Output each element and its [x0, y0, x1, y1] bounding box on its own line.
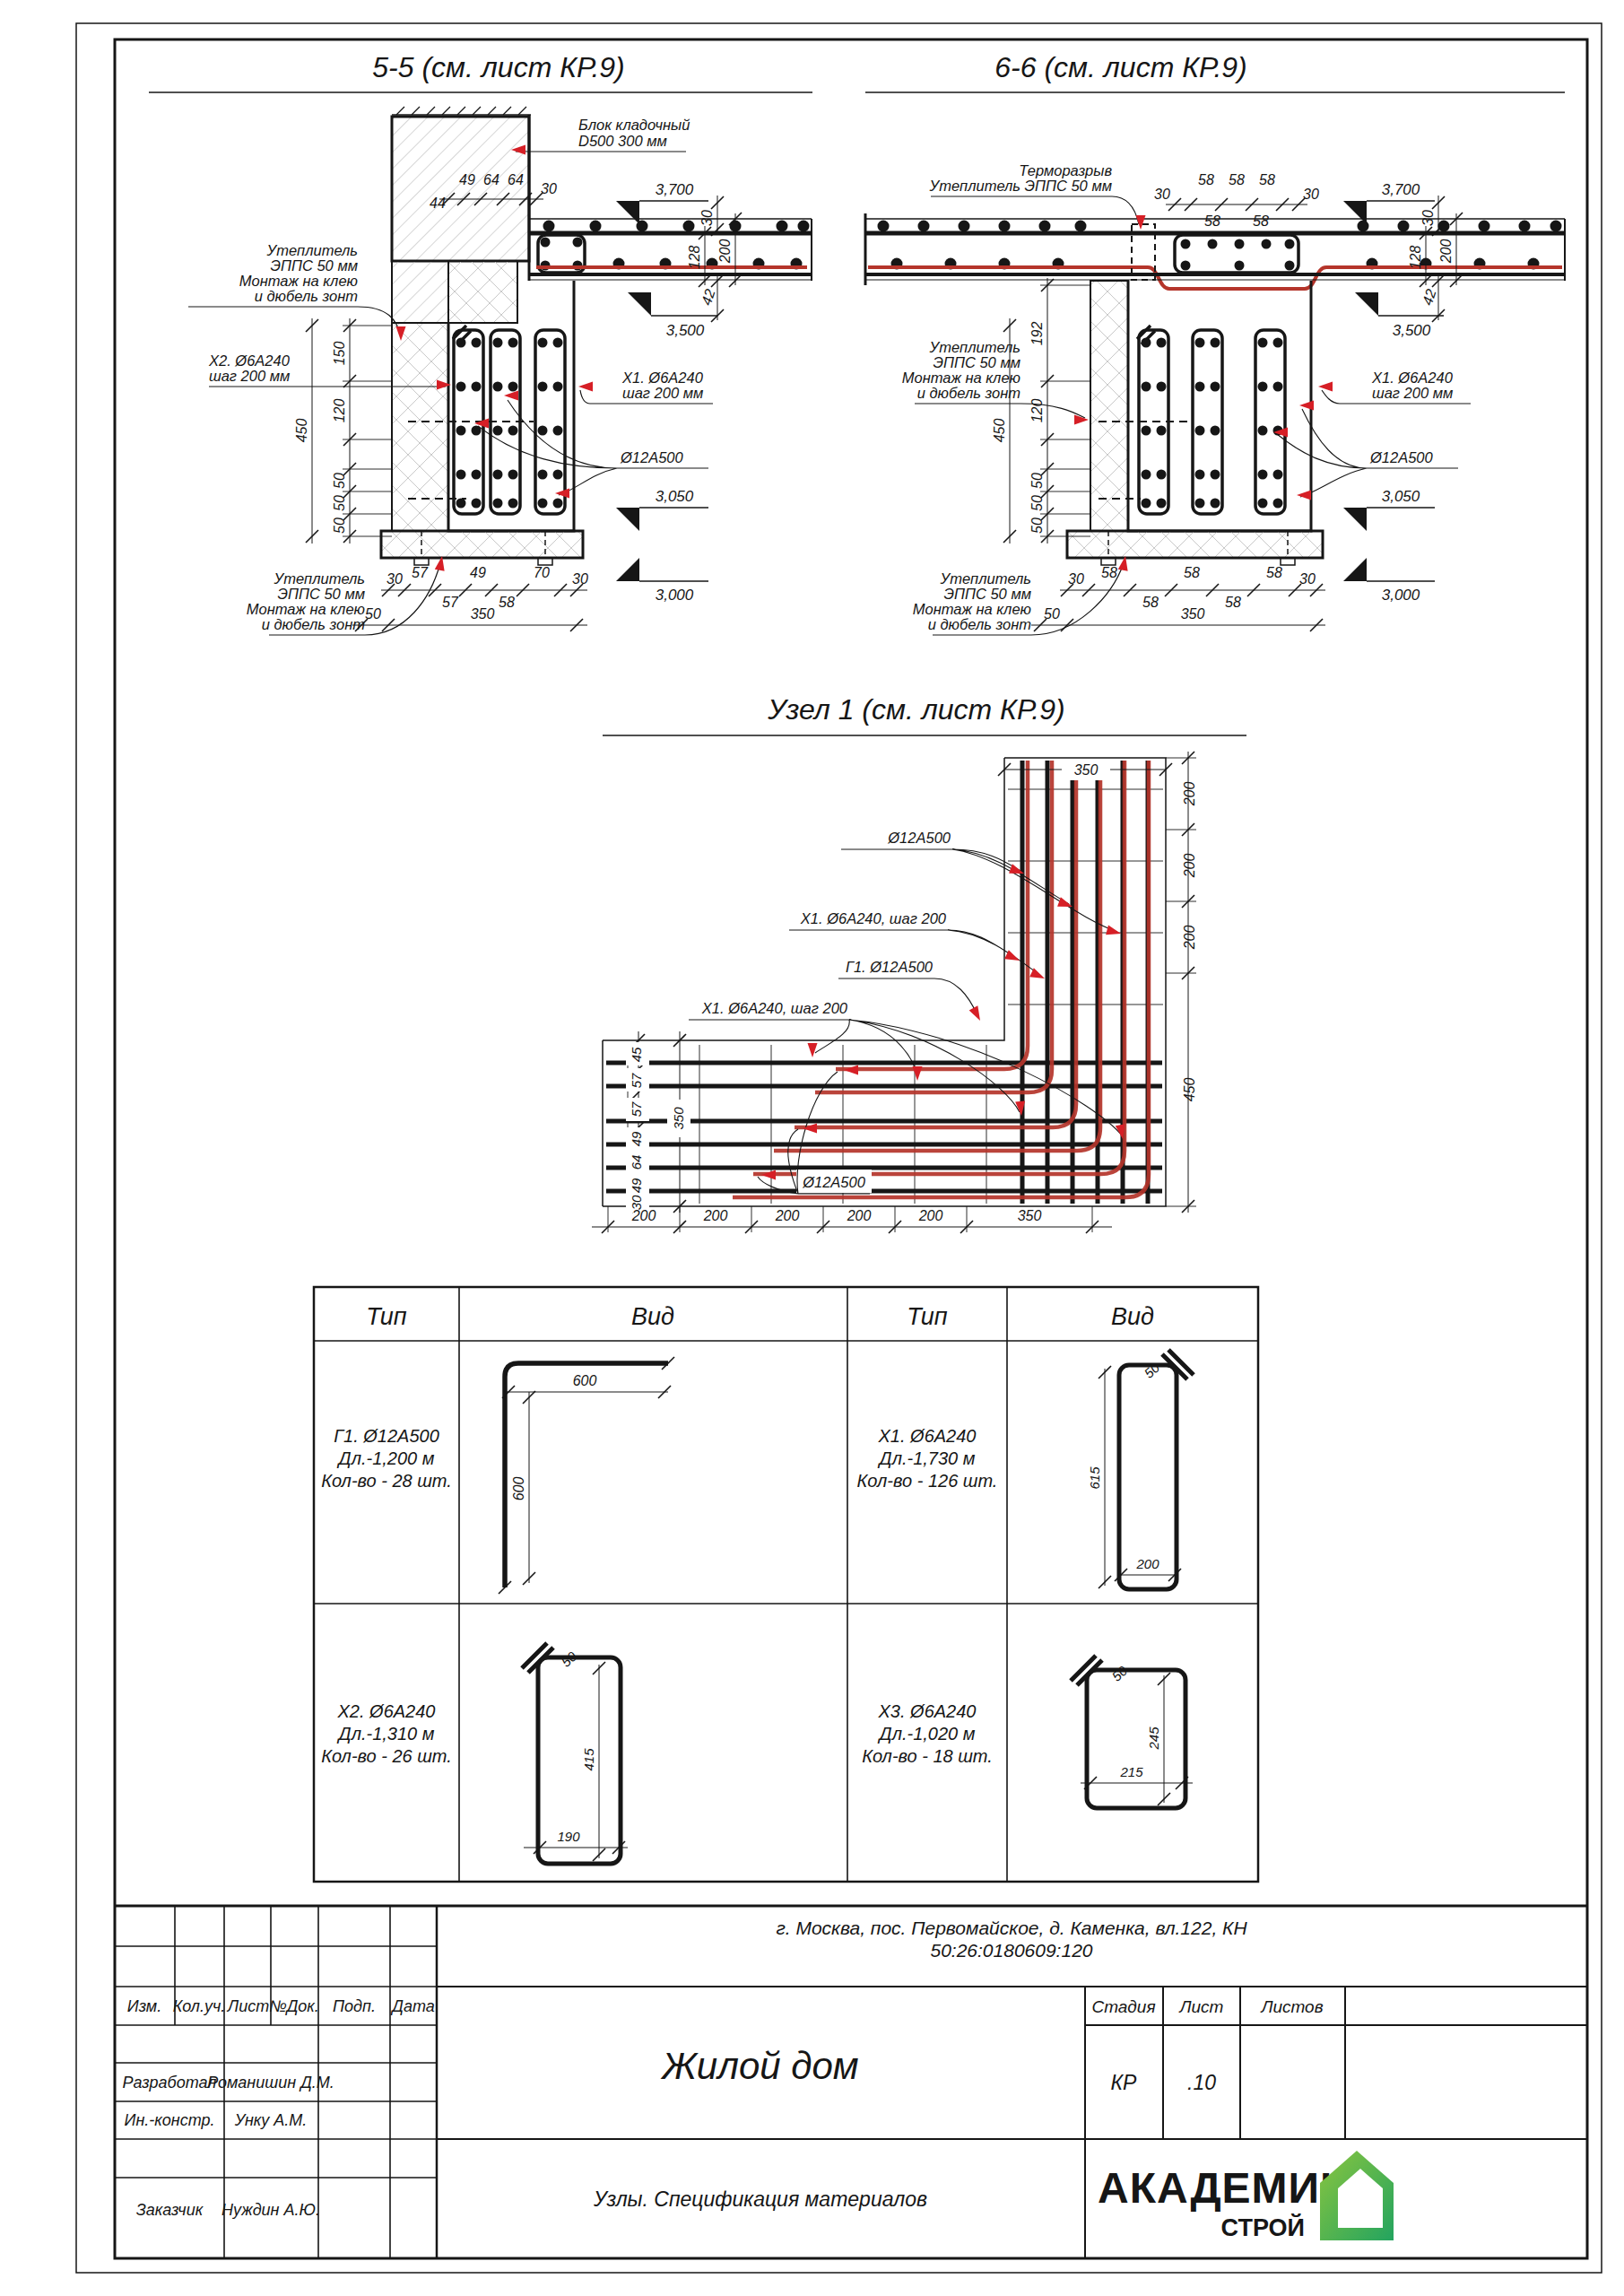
label-line: Монтаж на клею	[247, 601, 365, 617]
dim-label: 58	[1142, 595, 1159, 610]
dim-label: 58	[1204, 213, 1220, 229]
rebar-label: Х1. Ø6А240, шаг 200	[800, 910, 947, 926]
col-label: Подп.	[333, 1997, 376, 2015]
col-header: Вид	[631, 1303, 674, 1330]
dim-label: 58	[1253, 213, 1269, 229]
col-label: Стадия	[1091, 1997, 1155, 2016]
masonry-block	[392, 117, 529, 261]
label-line: ЭППС 50 мм	[278, 586, 365, 602]
dim-label: 50	[1029, 473, 1045, 489]
label-line: Монтаж на клею	[239, 273, 358, 289]
elevation: 3,050	[1382, 488, 1420, 505]
dim-label: 57	[629, 1073, 644, 1088]
dim-label: 450	[294, 419, 309, 443]
label-line: Х1. Ø6А240	[621, 370, 704, 386]
dim-label: 58	[1184, 565, 1200, 580]
dim-label: 64	[508, 172, 524, 187]
dim-label: 49	[629, 1178, 644, 1193]
col-header: Вид	[1111, 1303, 1154, 1330]
role: Разработал	[123, 2074, 217, 2092]
label-line: Терморазрыв	[1019, 162, 1112, 178]
type-line: Дл.-1,020 м	[878, 1724, 976, 1744]
dim-label: 49	[470, 565, 486, 580]
dim-label: 50	[332, 473, 347, 489]
dim-label: 350	[1181, 606, 1205, 622]
dim-label: 57	[412, 565, 429, 580]
dim-label: 44	[430, 196, 446, 211]
dim-label: 120	[332, 399, 347, 423]
elevation: 3,700	[656, 181, 694, 198]
dim-label: 30	[1299, 571, 1316, 587]
label-line: Утеплитель ЭППС 50 мм	[929, 178, 1112, 194]
node-title: Узел 1 (см. лист КР.9)	[767, 693, 1064, 726]
insulation-strip	[392, 261, 448, 323]
rebar-label: Ø12А500	[1369, 449, 1434, 465]
col-label: Лист	[227, 1997, 269, 2015]
person-name: Романишин Д.М.	[207, 2074, 334, 2092]
col-label: Листов	[1259, 1997, 1323, 2016]
dim-label: 64	[483, 172, 499, 187]
dim-label: 30	[386, 571, 403, 587]
dim-label: 30	[1303, 187, 1319, 202]
type-line: Дл.-1,200 м	[337, 1448, 435, 1468]
dim-label: 350	[1074, 762, 1099, 778]
col-header: Тип	[907, 1303, 948, 1330]
type-line: Дл.-1,730 м	[878, 1448, 976, 1468]
type-cell-x3: Х3. Ø6А240 Дл.-1,020 м Кол-во - 18 шт.	[862, 1701, 993, 1766]
label-line: шаг 200 мм	[1372, 385, 1453, 401]
dim-label: 30	[1068, 571, 1084, 587]
elevation: 3,050	[656, 488, 694, 505]
col-label: Дата	[390, 1997, 435, 2015]
label-line: ЭППС 50 мм	[944, 586, 1031, 602]
stage-value: КР	[1111, 2071, 1138, 2094]
dim-label: 58	[1229, 172, 1245, 187]
dim-label: 415	[581, 1748, 596, 1771]
dim-label: 58	[1198, 172, 1214, 187]
elevation: 3,700	[1382, 181, 1420, 198]
dim-label: 350	[471, 606, 495, 622]
dim-label: 50	[1044, 606, 1060, 622]
dim-label: 245	[1146, 1726, 1161, 1751]
dim-label: 450	[1182, 1078, 1197, 1102]
dim-label: 50	[365, 606, 381, 622]
label-line: Утеплитель	[929, 339, 1020, 355]
dim-label: 30	[1154, 187, 1170, 202]
dim-label: 30	[699, 210, 715, 226]
dim-label: 64	[629, 1155, 644, 1170]
dim-label: 600	[511, 1477, 526, 1501]
insulation-strip	[448, 261, 517, 323]
label-line: ЭППС 50 мм	[271, 257, 358, 274]
rebar-label: Ø12А500	[887, 830, 951, 846]
col-label: Изм.	[127, 1997, 161, 2015]
dim-label: 450	[992, 419, 1007, 443]
type-line: Кол-во - 18 шт.	[862, 1746, 993, 1766]
dim-label: 192	[1029, 322, 1045, 346]
label-line: Утеплитель	[266, 242, 358, 258]
type-line: Х2. Ø6А240	[337, 1701, 436, 1721]
dim-label: 215	[1119, 1764, 1143, 1779]
label-line: и дюбель зонт	[928, 616, 1031, 632]
dim-label: 200	[918, 1208, 943, 1223]
label-line: D500 300 мм	[578, 133, 667, 149]
dim-label: 30	[541, 181, 557, 196]
section-title: 5-5 (см. лист КР.9)	[372, 51, 624, 83]
label-line: и дюбель зонт	[255, 288, 358, 304]
type-line: Х3. Ø6А240	[878, 1701, 977, 1721]
rebar-label: Ø12А500	[620, 449, 684, 465]
dim-label: 615	[1087, 1466, 1102, 1490]
logo-text-main: АКАДЕМИК	[1098, 2164, 1347, 2212]
sheet-number: .10	[1187, 2071, 1216, 2094]
dim-label: 30	[572, 571, 588, 587]
x2-label: Х2. Ø6А240 шаг 200 мм	[208, 352, 291, 384]
elevation: 3,000	[1382, 587, 1420, 604]
dim-label: 120	[1029, 399, 1045, 423]
dim-label: 200	[631, 1208, 656, 1223]
dim-label: 50	[1029, 517, 1045, 534]
label-line: Монтаж на клею	[902, 370, 1020, 386]
role: Заказчик	[136, 2201, 204, 2219]
x1-label: Х1. Ø6А240 шаг 200 мм	[621, 370, 704, 401]
dim-label: 350	[1018, 1208, 1042, 1223]
drawing-sheet: 5-5 (см. лист КР.9)	[0, 0, 1624, 2296]
person-name: Унку А.М.	[234, 2111, 308, 2129]
label-line: и дюбель зонт	[262, 616, 365, 632]
dim-label: 200	[717, 239, 733, 265]
col-header: Тип	[366, 1303, 407, 1330]
label-line: Х2. Ø6А240	[208, 352, 291, 369]
type-line: Г1. Ø12А500	[334, 1426, 439, 1446]
rebar-label: Х1. Ø6А240, шаг 200	[701, 1000, 848, 1016]
elevation: 3,500	[666, 322, 705, 339]
dim-label: 70	[534, 565, 550, 580]
dim-label: 200	[1135, 1556, 1159, 1571]
dim-label: 58	[1225, 595, 1241, 610]
rebar-label: Г1. Ø12А500	[846, 959, 934, 975]
dim-label: 128	[687, 246, 702, 270]
dim-label: 50	[1029, 495, 1045, 511]
label-line: шаг 200 мм	[209, 368, 290, 384]
dim-label: 128	[1408, 246, 1423, 270]
label-line: Утеплитель	[940, 570, 1031, 587]
type-line: Кол-во - 26 шт.	[321, 1746, 452, 1766]
type-cell-x2: Х2. Ø6А240 Дл.-1,310 м Кол-во - 26 шт.	[321, 1701, 452, 1766]
dim-label: 600	[573, 1373, 597, 1388]
dim-label: 200	[1182, 782, 1197, 807]
dim-label: 58	[1259, 172, 1275, 187]
dim-label: 58	[499, 595, 515, 610]
dim-label: 190	[557, 1829, 580, 1844]
type-line: Х1. Ø6А240	[878, 1426, 977, 1446]
dim-label: 200	[847, 1208, 872, 1223]
dim-label: 150	[332, 342, 347, 366]
dim-label: 50	[332, 495, 347, 511]
dim-label: 50	[332, 517, 347, 534]
person-name: Нуждин А.Ю.	[221, 2201, 320, 2219]
dim-label: 58	[1266, 565, 1282, 580]
doc-title: Узлы. Спецификация материалов	[593, 2187, 927, 2211]
dim-label: 350	[671, 1107, 686, 1130]
label-line: ЭППС 50 мм	[934, 354, 1020, 370]
dim-label: 57	[629, 1101, 644, 1117]
col-label: №Док.	[269, 1997, 319, 2015]
drawing-canvas: 5-5 (см. лист КР.9)	[0, 0, 1624, 2296]
dim-label: 200	[1182, 926, 1197, 951]
col-label: Лист	[1178, 1997, 1224, 2016]
type-cell-g1: Г1. Ø12А500 Дл.-1,200 м Кол-во - 28 шт.	[321, 1426, 452, 1491]
x1-label: Х1. Ø6А240 шаг 200 мм	[1371, 370, 1454, 401]
insulation-strip	[392, 323, 448, 531]
dim-label: 30	[1420, 210, 1436, 226]
type-line: Кол-во - 28 шт.	[321, 1471, 452, 1491]
label-line: Блок кладочный	[578, 117, 690, 133]
section-title: 6-6 (см. лист КР.9)	[994, 51, 1246, 83]
elevation: 3,000	[656, 587, 694, 604]
label-line: и дюбель зонт	[917, 385, 1020, 401]
label-line: Х1. Ø6А240	[1371, 370, 1454, 386]
label-line: шаг 200 мм	[622, 385, 703, 401]
dim-label: 58	[1101, 565, 1117, 580]
rebar-label: Ø12А500	[802, 1174, 866, 1190]
project-title: Жилой дом	[660, 2045, 858, 2087]
dim-label: 45	[629, 1047, 644, 1062]
type-line: Дл.-1,310 м	[337, 1724, 435, 1744]
label-line: Утеплитель	[274, 570, 365, 587]
dim-label: 57	[442, 595, 459, 610]
insulation-strip	[1090, 281, 1128, 531]
dim-label: 200	[1438, 239, 1454, 265]
elevation: 3,500	[1393, 322, 1431, 339]
label-line: Монтаж на клею	[913, 601, 1031, 617]
dim-label: 200	[775, 1208, 800, 1223]
paper	[0, 0, 1624, 2296]
object-address: г. Москва, пос. Первомайское, д. Каменка…	[776, 1918, 1247, 1938]
dim-label: 200	[703, 1208, 728, 1223]
col-label: Кол.уч.	[173, 1997, 226, 2015]
stage-header-row: Стадия Лист Листов	[1091, 1997, 1323, 2016]
role: Ин.-констр.	[125, 2111, 215, 2129]
dim-label: 200	[1182, 854, 1197, 879]
object-cadastre: 50:26:0180609:120	[930, 1940, 1092, 1961]
dim-label: 49	[459, 172, 475, 187]
logo-text-sub: СТРОЙ	[1221, 2213, 1305, 2241]
dim-label: 49	[629, 1131, 644, 1146]
type-line: Кол-во - 126 шт.	[857, 1471, 998, 1491]
